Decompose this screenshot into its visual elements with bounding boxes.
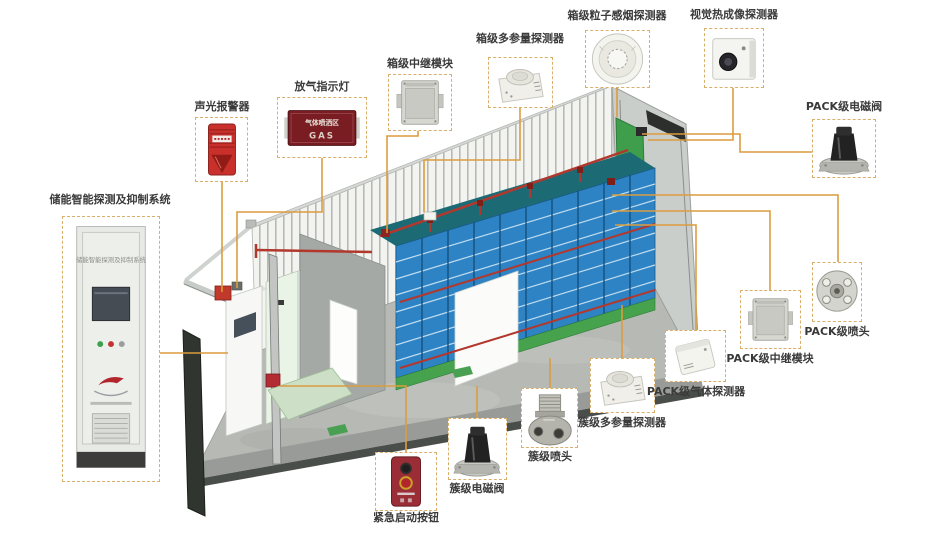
box-relay-module-label: 箱级中继模块 bbox=[387, 58, 453, 70]
emergency-button-device bbox=[266, 374, 280, 387]
sound-light-alarm-icon bbox=[196, 118, 247, 181]
open-door-panel bbox=[183, 330, 205, 516]
cabinet-panel-text: 储能智能探测及抑制系统 bbox=[76, 255, 147, 264]
cluster-multiparam-detector-box bbox=[590, 358, 655, 413]
sound-light-alarm-box bbox=[195, 117, 248, 182]
pack-nozzle-label: PACK级喷头 bbox=[804, 326, 869, 338]
box-smoke-detector-box bbox=[585, 30, 650, 88]
box-multiparam-detector-box bbox=[488, 57, 553, 108]
diagram-canvas: 储能智能探测及抑制系统 bbox=[0, 0, 933, 538]
thermal-imaging-detector-icon bbox=[705, 29, 763, 87]
cluster-solenoid-valve-box bbox=[448, 418, 507, 480]
pack-solenoid-valve-label: PACK级电磁阀 bbox=[806, 101, 882, 113]
pack-nozzle-box bbox=[812, 262, 862, 322]
pack-relay-module-label: PACK级中继模块 bbox=[726, 353, 813, 365]
cluster-multiparam-detector-label: 簇级多参量探测器 bbox=[578, 417, 666, 429]
emergency-start-button-label: 紧急启动按钮 bbox=[373, 512, 439, 524]
box-multiparam-detector-label: 箱级多参量探测器 bbox=[476, 33, 564, 45]
thermal-imaging-detector-box bbox=[704, 28, 764, 88]
box-multiparam-detector-icon bbox=[489, 58, 552, 107]
sound-light-alarm-label: 声光报警器 bbox=[195, 101, 250, 113]
cluster-multiparam-detector-icon bbox=[591, 359, 654, 412]
pack-solenoid-valve-box bbox=[812, 119, 876, 178]
box-smoke-detector-icon bbox=[586, 31, 649, 87]
emergency-start-button-box bbox=[375, 452, 437, 511]
gas-sign-gas-text: GAS bbox=[309, 132, 335, 142]
box-relay-module-icon bbox=[389, 75, 451, 130]
box-relay-device bbox=[381, 229, 390, 237]
gas-release-indicator-icon: 气体喷洒区 GAS bbox=[278, 98, 366, 157]
pack-relay-module-box bbox=[740, 290, 801, 349]
suppression-cabinet-icon: 储能智能探测及抑制系统 bbox=[63, 217, 159, 481]
box-multiparam-device bbox=[424, 212, 436, 220]
cluster-solenoid-valve-icon bbox=[449, 419, 506, 479]
pack-gas-detector-icon bbox=[666, 331, 725, 381]
pack-relay-module-icon bbox=[741, 291, 800, 348]
box-relay-module-box bbox=[388, 74, 452, 131]
gas-release-indicator-box: 气体喷洒区 GAS bbox=[277, 97, 367, 158]
emergency-start-button-icon bbox=[376, 453, 436, 510]
cluster-solenoid-valve-label: 簇级电磁阀 bbox=[450, 483, 505, 495]
pack-gas-detector-box bbox=[665, 330, 726, 382]
cluster-nozzle-label: 簇级喷头 bbox=[528, 451, 572, 463]
storage-system-box: 储能智能探测及抑制系统 bbox=[62, 216, 160, 482]
gas-sign-text: 气体喷洒区 bbox=[304, 118, 339, 127]
pack-gas-detector-label: PACK级气体探测器 bbox=[647, 386, 745, 398]
pack-nozzle-icon bbox=[813, 263, 861, 321]
cluster-nozzle-box bbox=[521, 388, 578, 448]
pack-solenoid-valve-icon bbox=[813, 120, 875, 177]
box-smoke-detector-label: 箱级粒子感烟探测器 bbox=[568, 10, 667, 22]
cluster-nozzle-icon bbox=[522, 389, 577, 447]
gas-release-indicator-label: 放气指示灯 bbox=[295, 81, 350, 93]
thermal-imaging-detector-label: 视觉热成像探测器 bbox=[690, 9, 778, 21]
wall-alarm-device bbox=[215, 286, 231, 300]
storage-system-label: 储能智能探测及抑制系统 bbox=[50, 194, 171, 206]
